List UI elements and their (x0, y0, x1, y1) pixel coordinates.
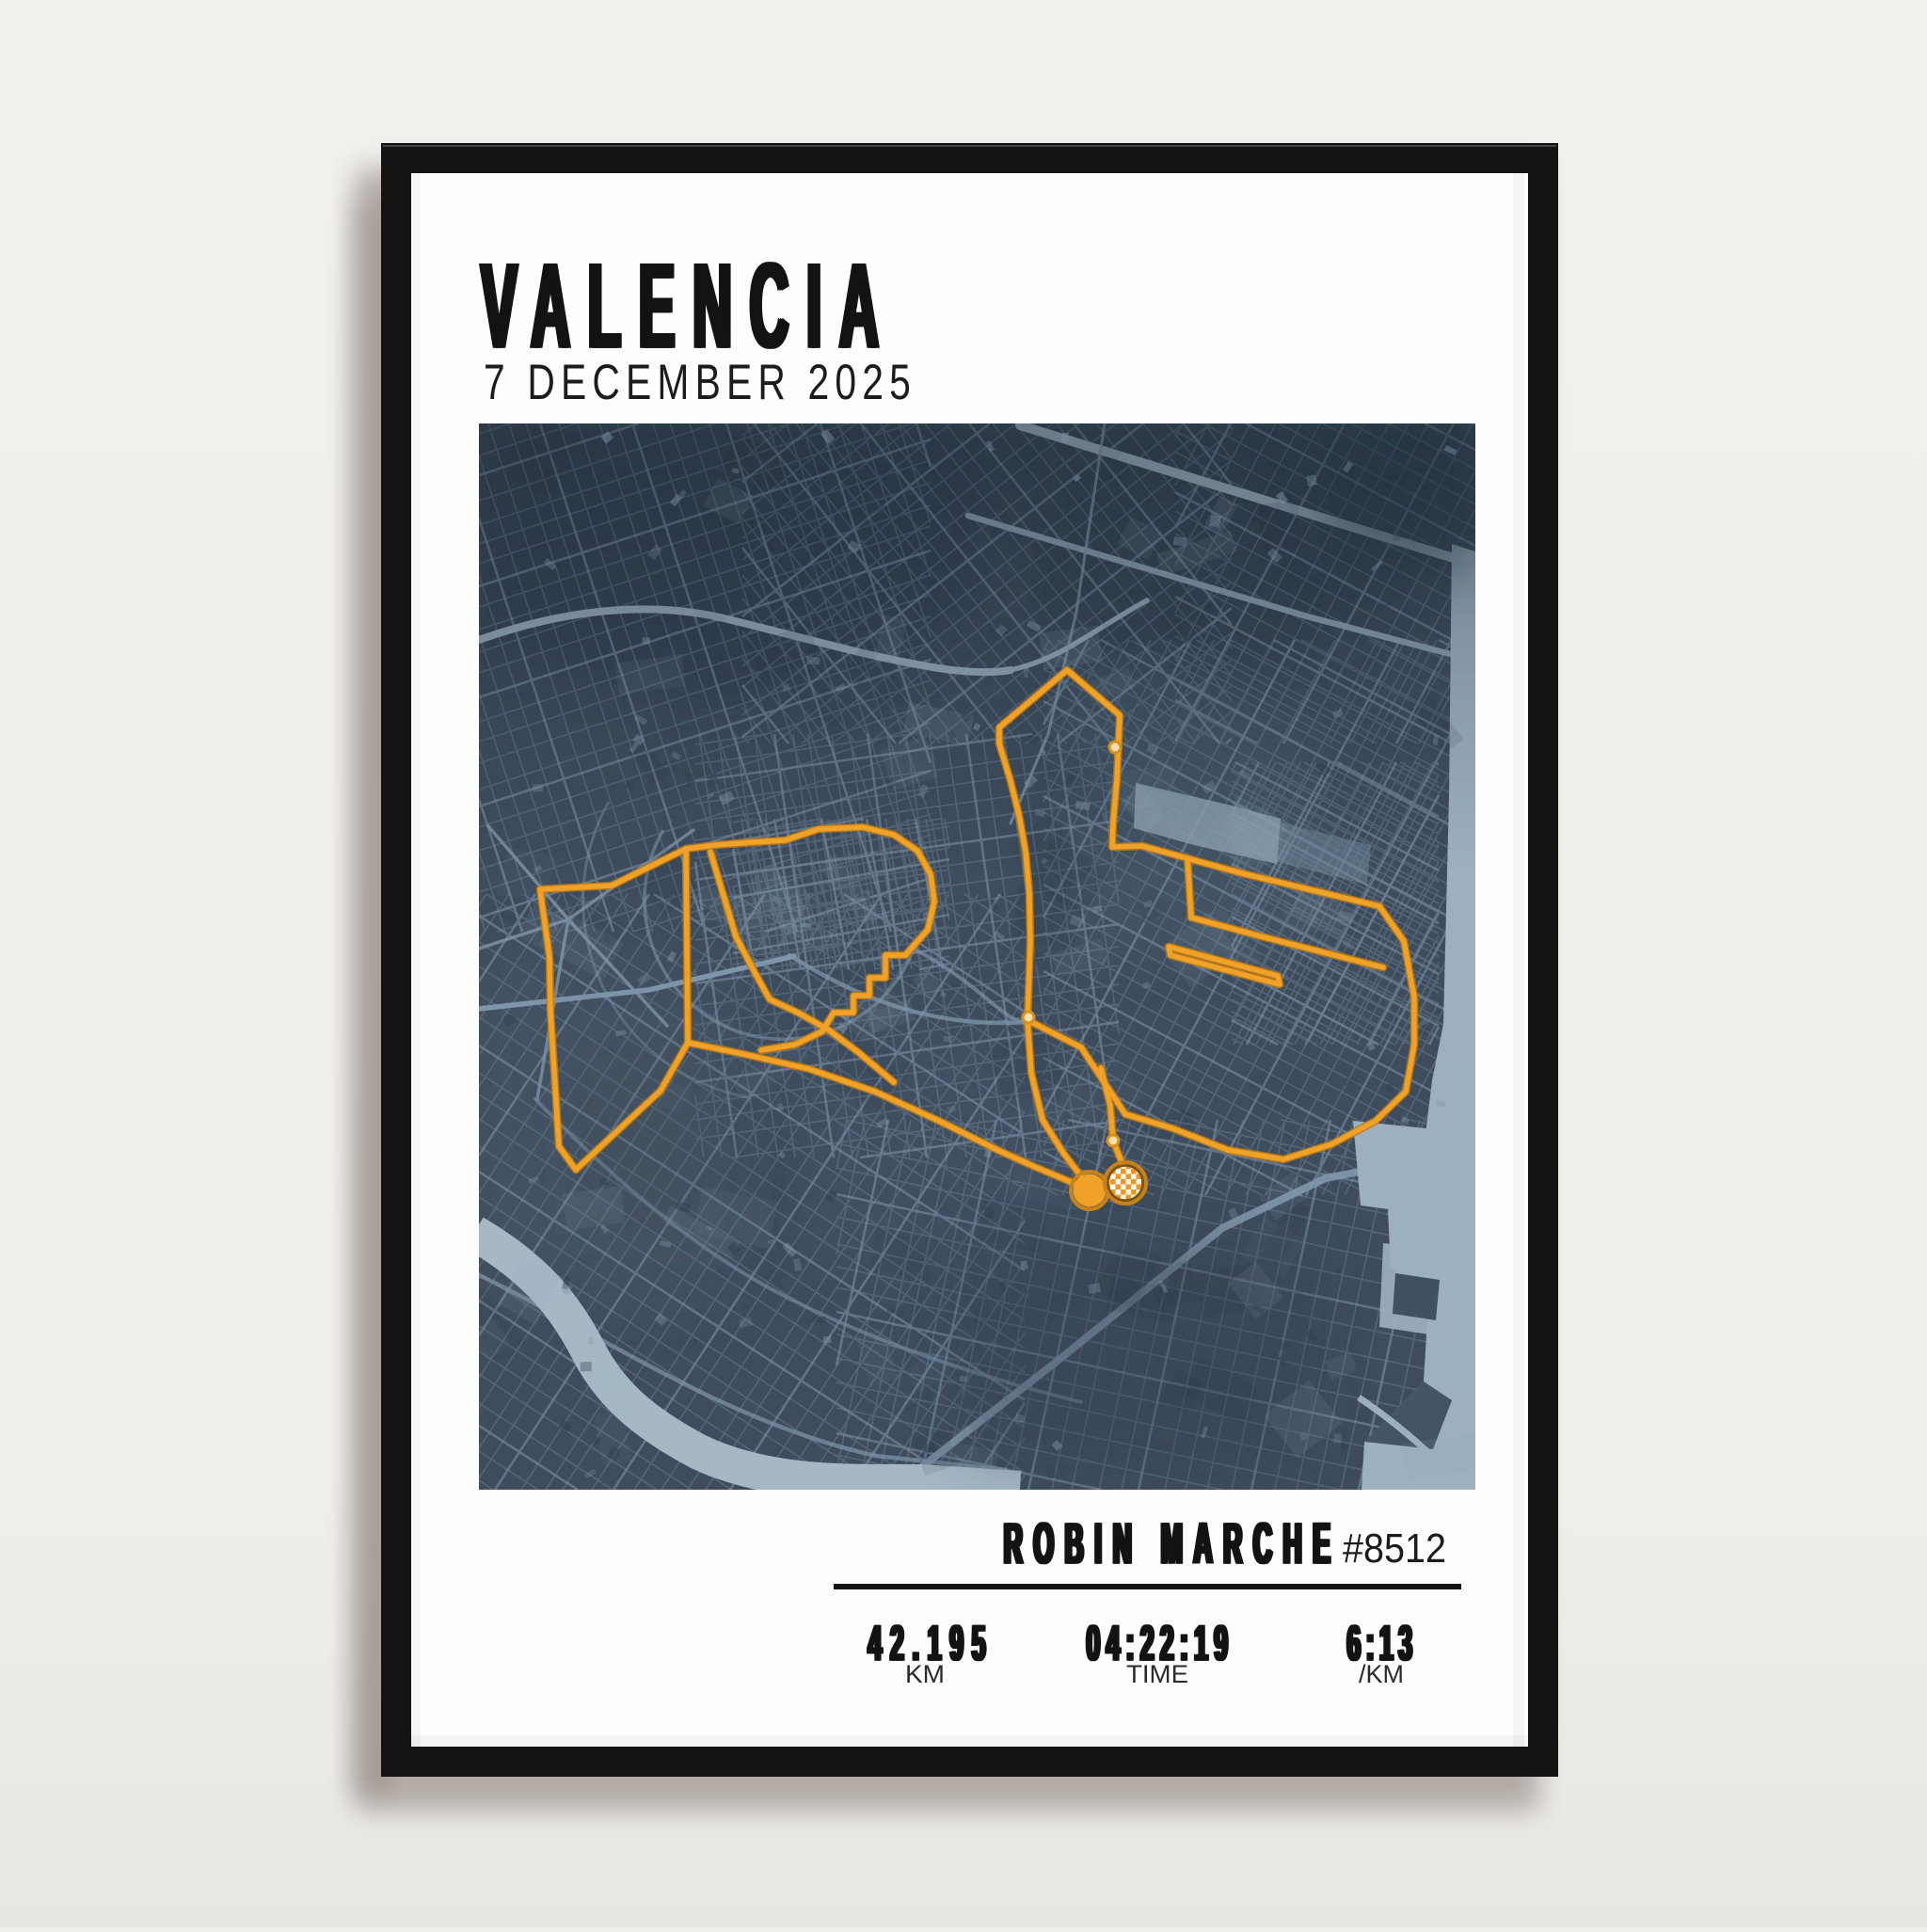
svg-text:#8512: #8512 (1343, 1525, 1446, 1572)
svg-text:ROBIN MARCHE: ROBIN MARCHE (1006, 1512, 1344, 1576)
svg-text:KM: KM (905, 1660, 945, 1688)
svg-text:/KM: /KM (1359, 1660, 1404, 1688)
svg-text:7 DECEMBER 2025: 7 DECEMBER 2025 (484, 355, 916, 410)
svg-text:VALENCIA: VALENCIA (484, 239, 899, 374)
svg-text:TIME: TIME (1126, 1660, 1188, 1688)
